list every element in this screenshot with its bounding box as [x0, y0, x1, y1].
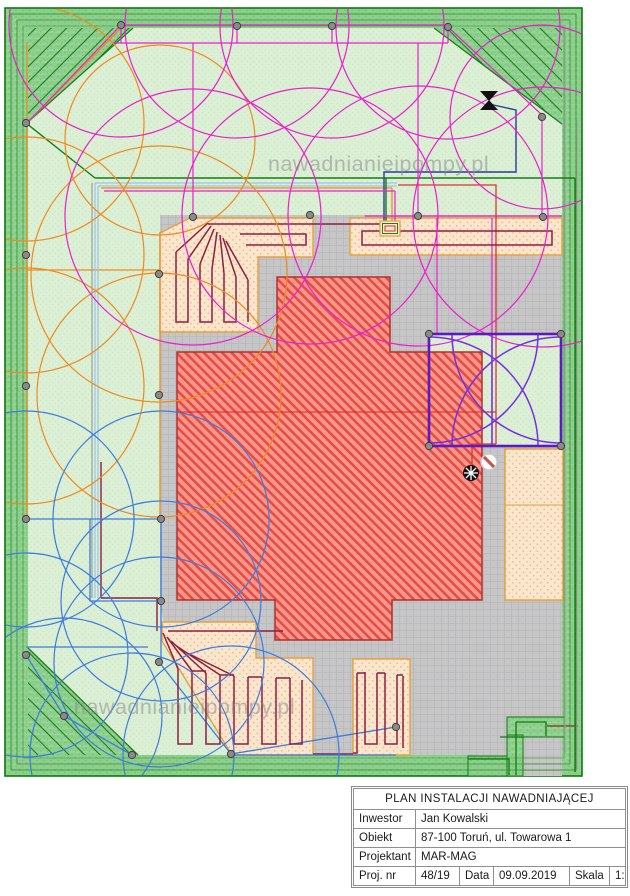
plan-title: PLAN INSTALACJI NAWADNIAJĄCEJ — [354, 789, 626, 810]
no-entry-icon — [481, 454, 497, 470]
pump-icon — [463, 465, 479, 481]
watermark-top: nawadnianieipompy.pl — [268, 152, 489, 176]
irrigation-plan-page: nawadnianieipompy.pl nawadnianieipompy.p… — [0, 0, 630, 896]
date-label: Data — [460, 867, 494, 886]
plan-map: nawadnianieipompy.pl nawadnianieipompy.p… — [0, 0, 630, 896]
designer-value: MAR-MAG — [416, 848, 626, 867]
investor-value: Jan Kowalski — [416, 810, 626, 829]
object-value: 87-100 Toruń, ul. Towarowa 1 — [416, 829, 626, 848]
watermark-bottom: nawadnianieipompy.pl — [74, 695, 295, 719]
proj-nr-value: 48/19 — [416, 867, 460, 886]
scale-label: Skala — [570, 867, 610, 886]
scale-value: 1:160 — [610, 867, 626, 886]
valve-manifold-box — [380, 221, 400, 236]
title-block: PLAN INSTALACJI NAWADNIAJĄCEJ Inwestor J… — [351, 786, 628, 888]
proj-nr-label: Proj. nr — [354, 867, 416, 886]
date-value: 09.09.2019 — [494, 867, 570, 886]
drip-zone-right — [505, 449, 563, 600]
gate-area — [468, 717, 578, 776]
object-label: Obiekt — [354, 829, 416, 848]
designer-label: Projektant — [354, 848, 416, 867]
title-block-table: PLAN INSTALACJI NAWADNIAJĄCEJ Inwestor J… — [353, 788, 626, 886]
investor-label: Inwestor — [354, 810, 416, 829]
